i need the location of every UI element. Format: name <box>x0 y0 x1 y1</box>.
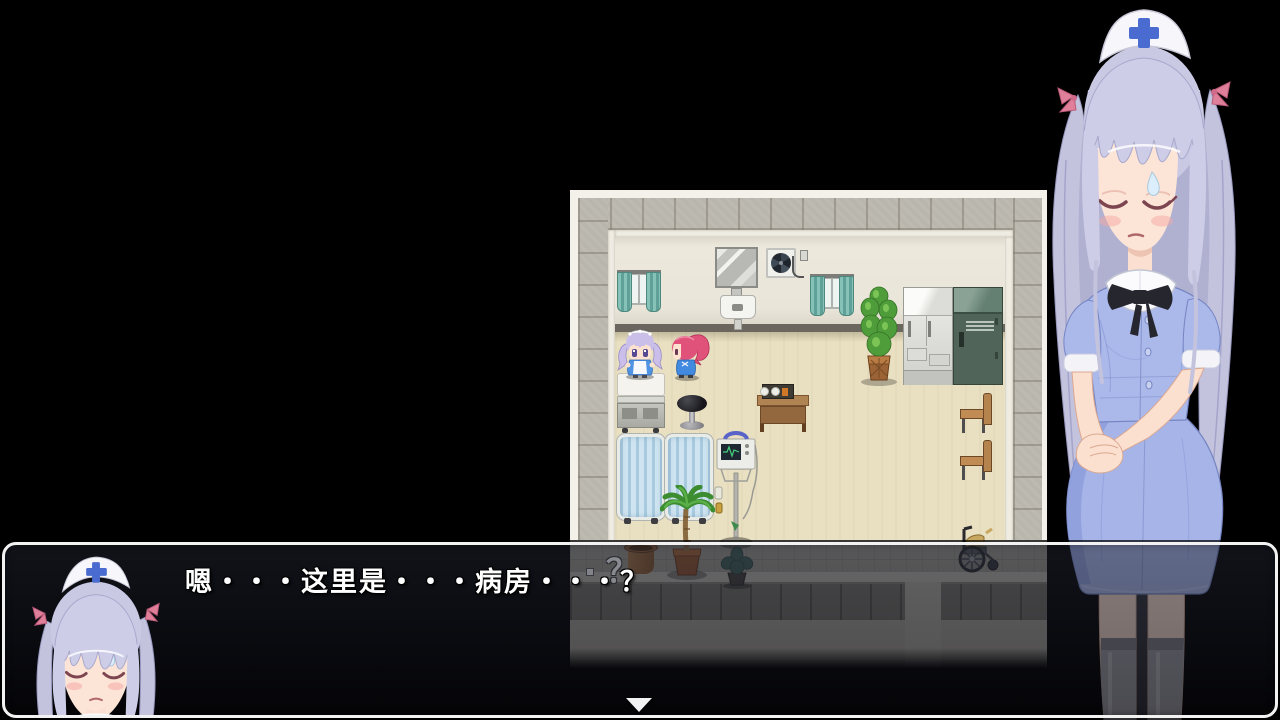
map-edge-top <box>570 190 1047 198</box>
wall-tiles-top <box>578 198 1042 230</box>
potted-plant <box>856 286 902 386</box>
wall-trim-top <box>615 230 1013 237</box>
map-edge-right <box>1042 190 1047 542</box>
locker <box>953 287 1003 385</box>
stool <box>677 395 707 433</box>
curtained-bed-left <box>617 434 665 520</box>
message-advance-cursor <box>626 698 652 712</box>
hair-ribbon-left <box>1058 88 1077 112</box>
map-edge-left <box>570 190 578 542</box>
wall-sink <box>720 288 756 330</box>
game-screen: ？ <box>0 0 1280 720</box>
window-curtain-right <box>810 272 854 318</box>
dialog-text: 嗯・・・这里是・・・病房・・・？ <box>185 560 649 599</box>
fan-plug <box>800 250 808 261</box>
wall-tiles-left <box>578 198 608 542</box>
hair-ribbon-right <box>1211 82 1230 106</box>
hospital-bed <box>617 373 665 433</box>
wooden-chair-2 <box>960 440 994 480</box>
wall-trim-right <box>1005 237 1013 542</box>
npc-maid-pink[interactable] <box>668 332 710 381</box>
wall-tiles-right <box>1013 198 1042 542</box>
nurse-portrait <box>27 551 165 718</box>
message-window[interactable]: 嗯・・・这里是・・・病房・・・？ <box>2 542 1278 718</box>
wooden-chair-1 <box>960 393 994 433</box>
wall-trim-left <box>608 230 615 542</box>
wall-mirror <box>715 247 758 288</box>
window-curtain-left <box>617 268 661 314</box>
medical-monitor-stand <box>713 431 759 551</box>
npc-maid-silver[interactable] <box>617 328 663 380</box>
refrigerator <box>903 287 953 385</box>
meal-table <box>757 384 809 433</box>
